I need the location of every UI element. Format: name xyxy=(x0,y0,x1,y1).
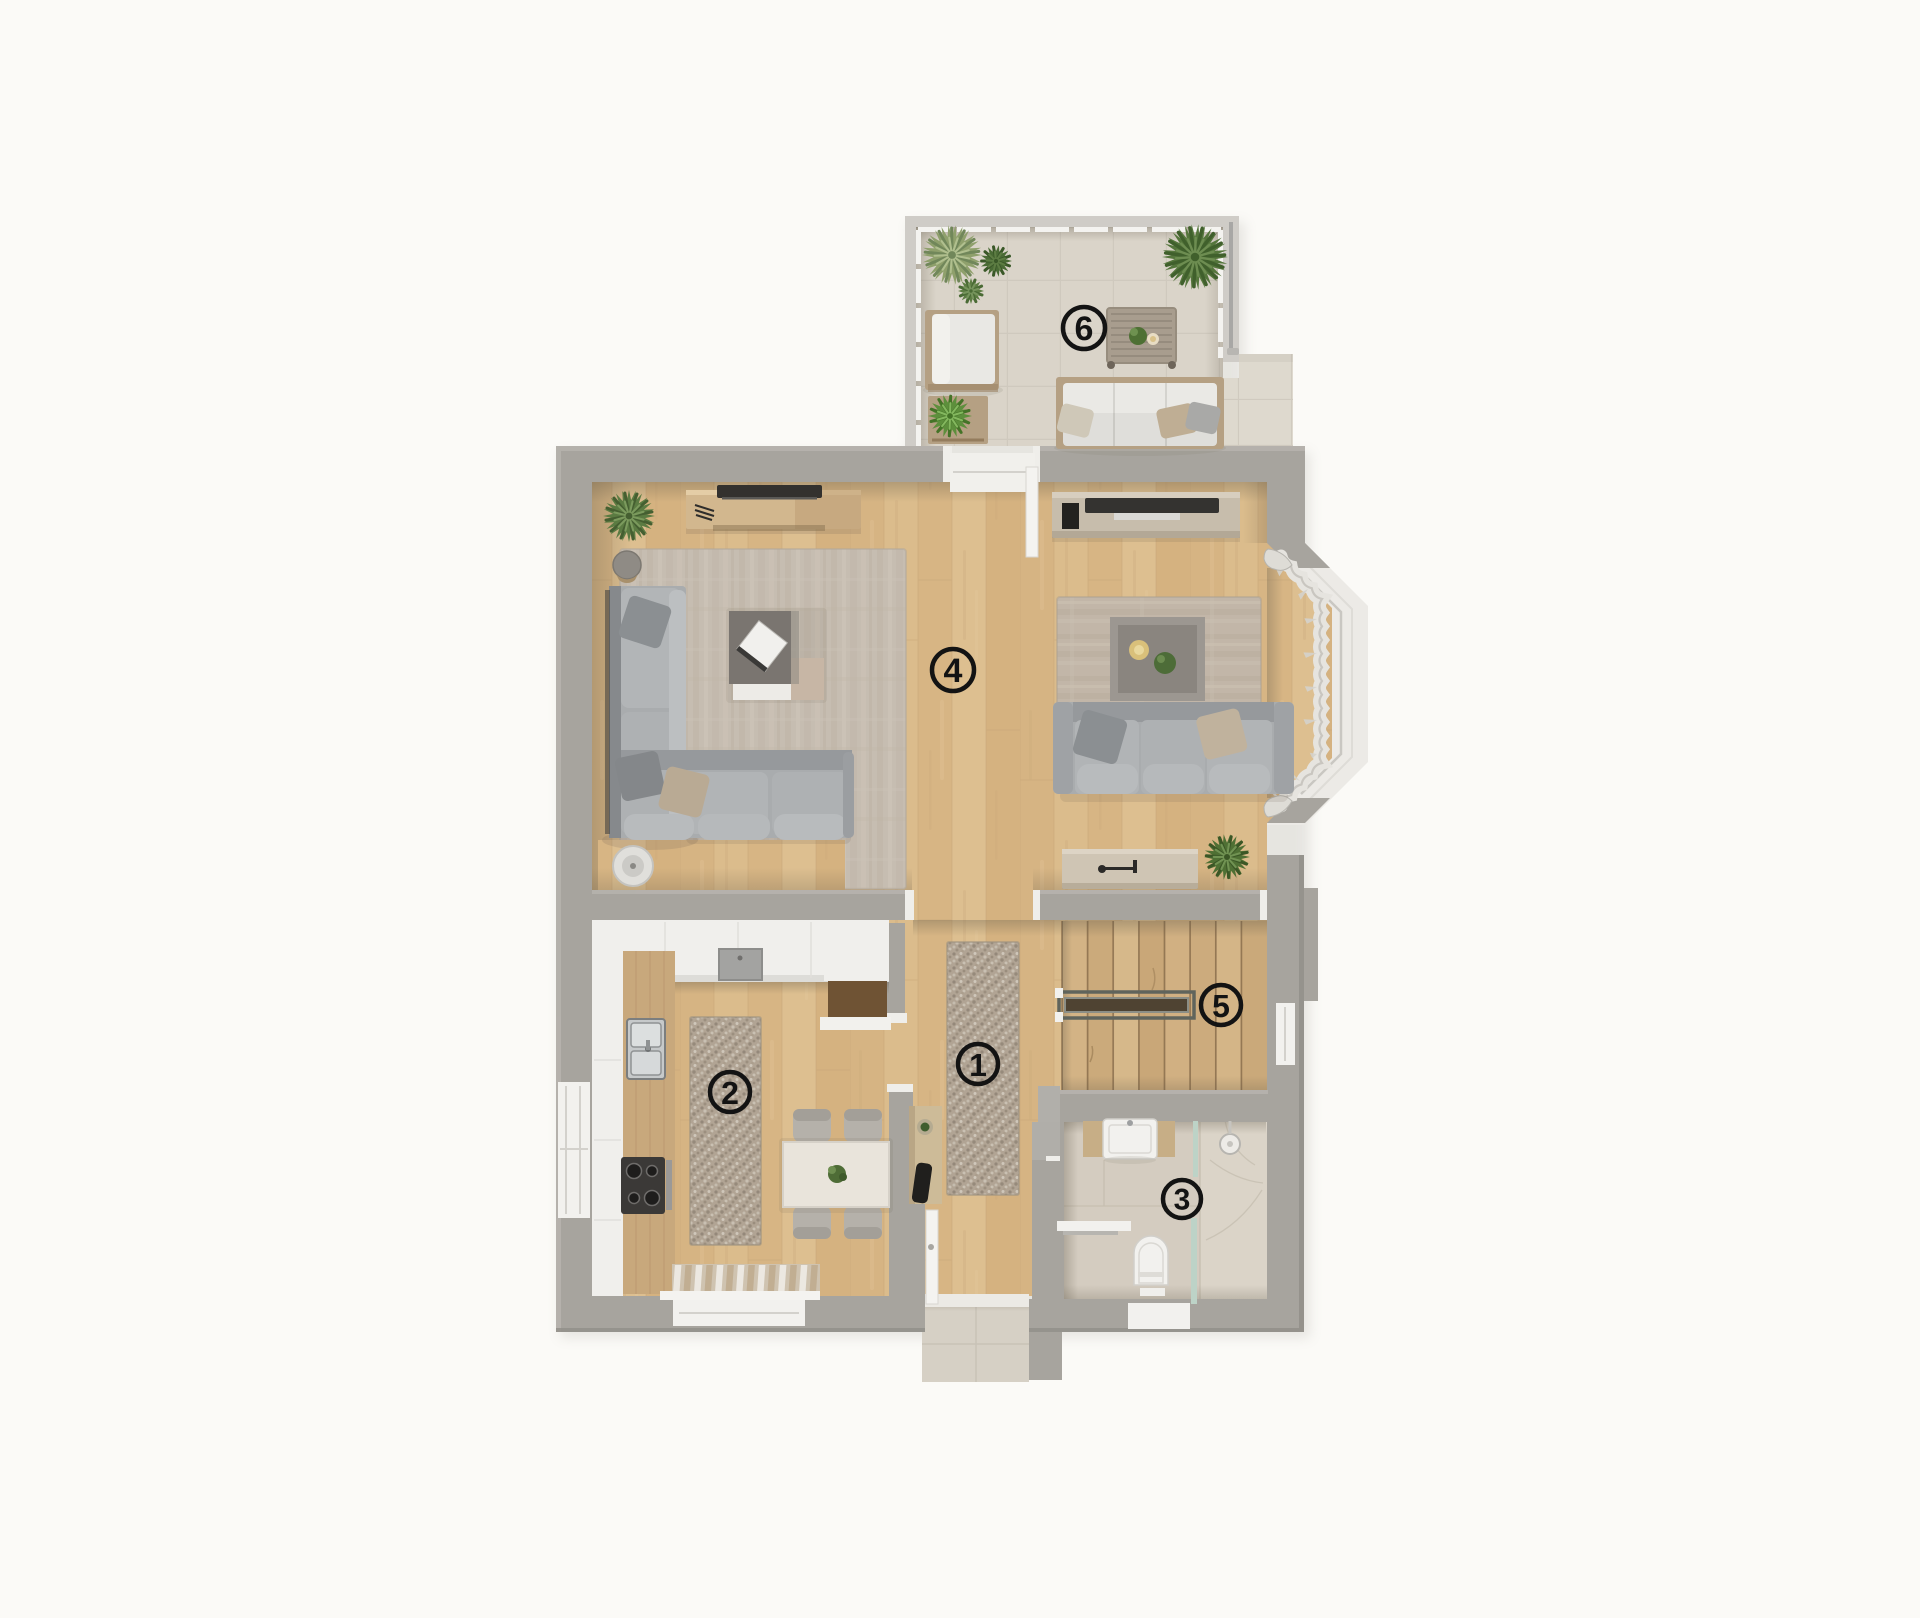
svg-text:6: 6 xyxy=(1075,310,1094,348)
svg-text:1: 1 xyxy=(969,1047,987,1083)
svg-text:5: 5 xyxy=(1212,988,1230,1024)
svg-text:4: 4 xyxy=(944,652,963,690)
svg-text:3: 3 xyxy=(1174,1184,1191,1217)
svg-text:2: 2 xyxy=(721,1075,739,1111)
